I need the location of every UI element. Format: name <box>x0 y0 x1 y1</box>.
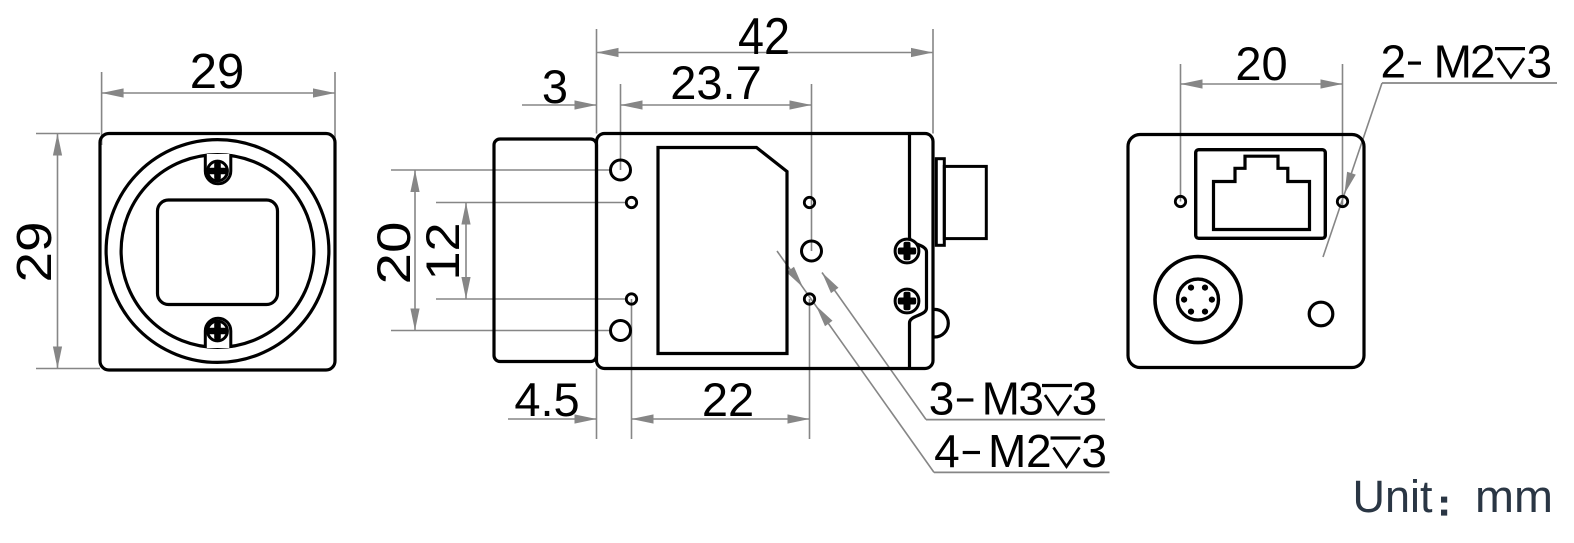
svg-text:20: 20 <box>1235 37 1287 90</box>
svg-text:29: 29 <box>8 222 62 283</box>
svg-text:3: 3 <box>542 60 568 113</box>
svg-text:Unit: Unit <box>1353 471 1434 522</box>
svg-text:3M33: 3M33 <box>929 373 1097 425</box>
svg-text:29: 29 <box>190 45 245 99</box>
svg-text:22: 22 <box>702 373 754 426</box>
svg-text:4.5: 4.5 <box>514 373 579 426</box>
svg-text:12: 12 <box>416 223 469 281</box>
svg-text:mm: mm <box>1475 471 1553 522</box>
svg-text:23.7: 23.7 <box>670 56 761 109</box>
svg-text:20: 20 <box>367 222 420 285</box>
